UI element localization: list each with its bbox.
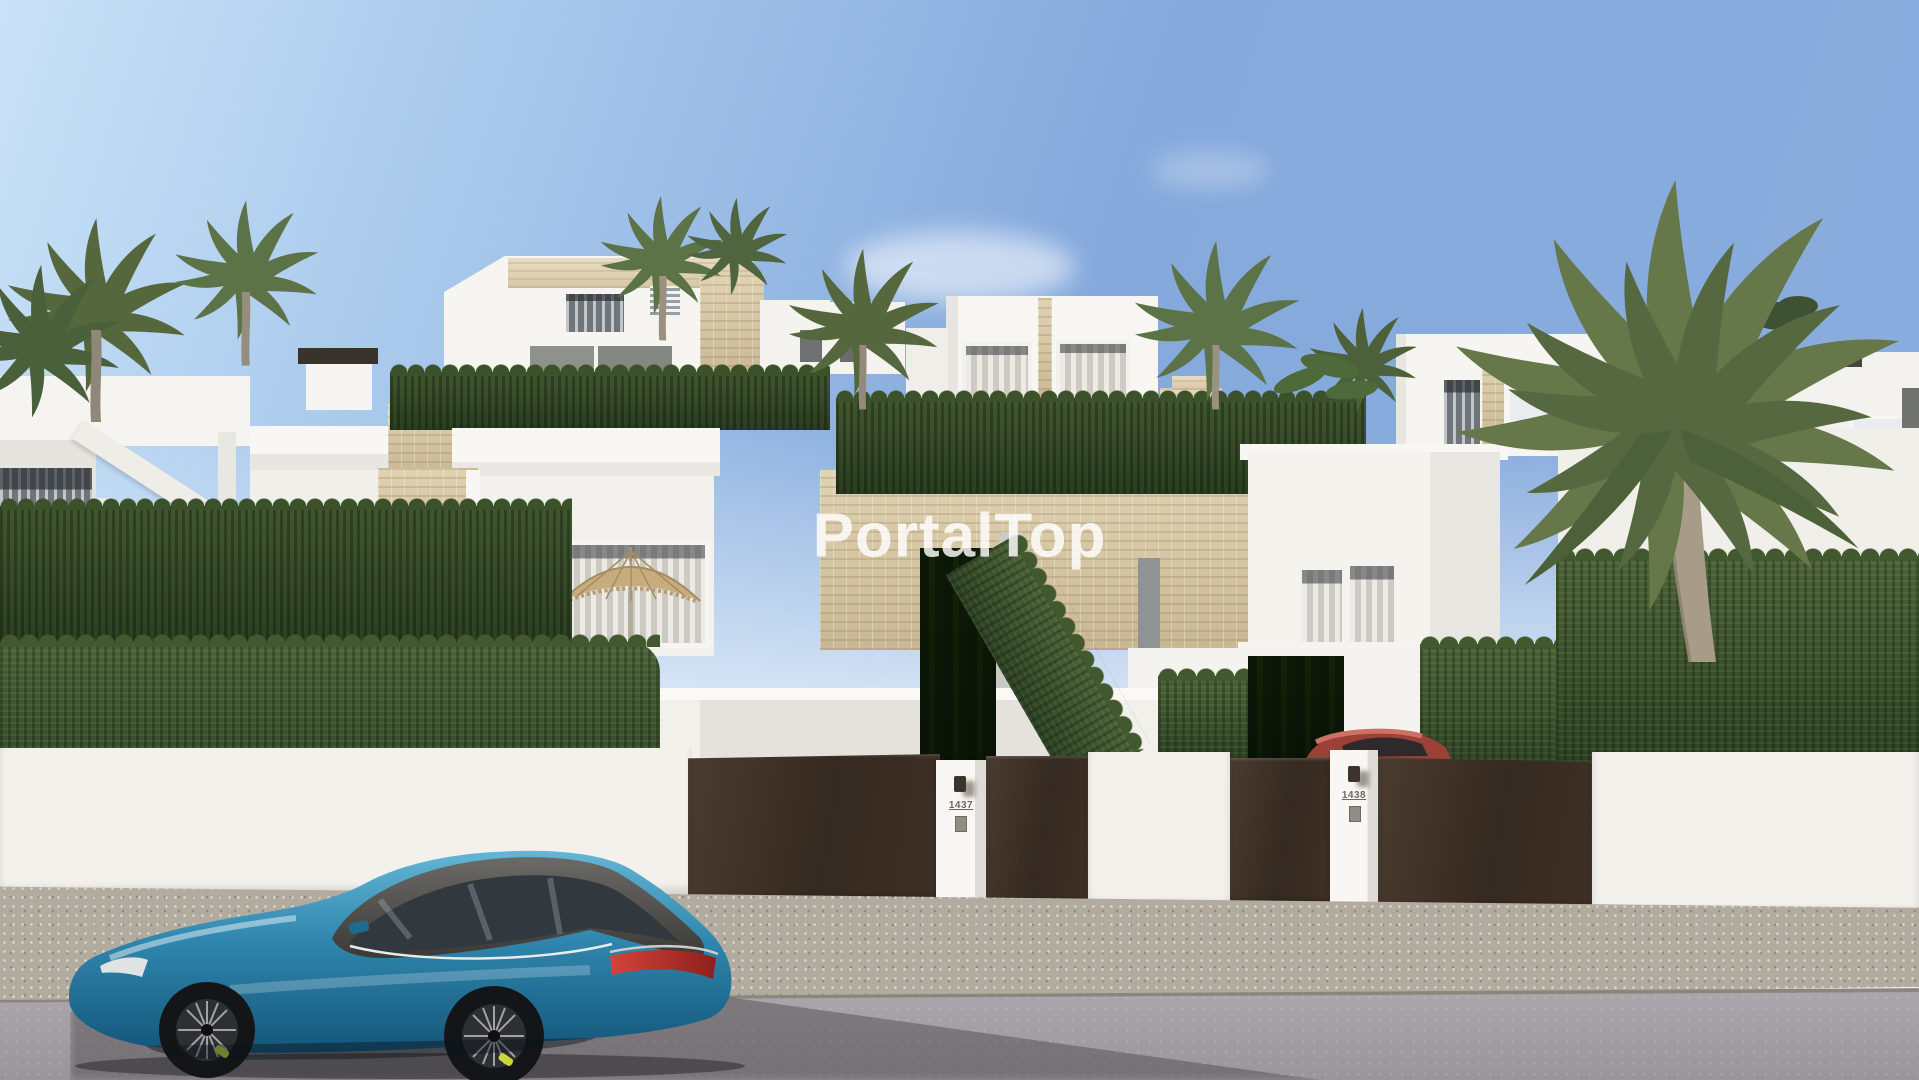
pillar-lamp-icon — [954, 776, 966, 792]
watermark: PortalTop — [813, 501, 1107, 572]
gate-pillar-1438: 1438 — [1330, 750, 1378, 910]
intercom-icon — [1349, 806, 1361, 822]
gate-pillar-1437: 1437 — [936, 760, 986, 908]
driveway-gate — [1378, 756, 1592, 908]
street-wall-mid — [1088, 752, 1230, 908]
house-number: 1437 — [936, 800, 986, 811]
architectural-render-scene: 1437 1438 — [0, 0, 1919, 1080]
front-wheel — [159, 982, 255, 1078]
big-palm-tree — [1452, 178, 1916, 662]
house-number: 1438 — [1330, 790, 1378, 801]
pedestrian-gate — [986, 756, 1088, 904]
street-wall-right — [1592, 752, 1919, 916]
pedestrian-gate — [1230, 758, 1330, 904]
intercom-icon — [955, 816, 967, 832]
blue-estate-car — [50, 838, 762, 1080]
pillar-lamp-icon — [1348, 766, 1360, 782]
